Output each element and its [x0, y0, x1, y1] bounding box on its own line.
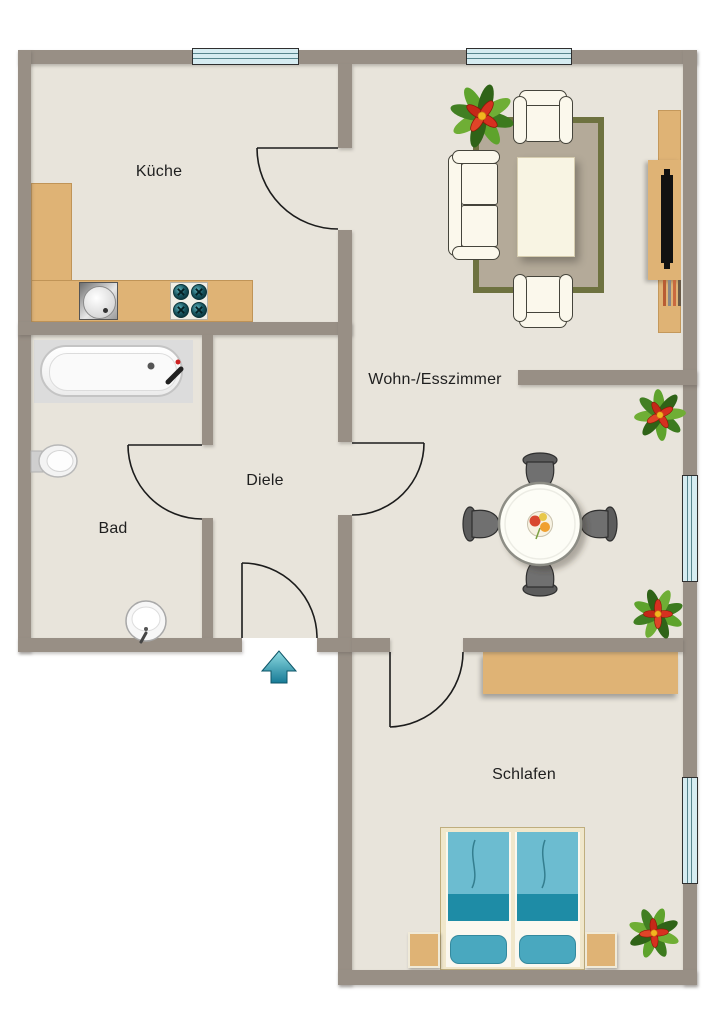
pillow-left	[450, 935, 507, 964]
kitchen-sink-basin	[83, 286, 116, 319]
nightstand-left	[408, 932, 440, 968]
bathtub	[40, 345, 183, 397]
bathtub-inner	[49, 353, 177, 391]
wall-left	[18, 50, 31, 652]
pillow-right	[519, 935, 576, 964]
sofa-backrest	[448, 154, 462, 256]
books	[678, 280, 681, 306]
double-bed	[440, 827, 585, 970]
tv	[664, 169, 670, 269]
room-label-schlafen: Schlafen	[492, 766, 556, 784]
coffee-table	[517, 157, 575, 257]
wall-bedroom-bottom	[338, 970, 697, 985]
window-living-room	[466, 48, 572, 65]
wall-dining-stub	[518, 370, 697, 385]
kitchen-sink-drain	[103, 308, 108, 313]
sofa-armrest	[452, 150, 500, 164]
armchair-armrest	[559, 96, 573, 144]
room-label-kueche: Küche	[136, 163, 182, 181]
wall-bad-diele-upper	[202, 335, 213, 445]
blanket-right	[517, 832, 578, 894]
books	[663, 280, 666, 306]
wall-center-middle	[338, 230, 352, 442]
wall-center-lower	[338, 515, 352, 985]
books	[668, 280, 671, 306]
entrance-arrow-icon	[262, 651, 296, 683]
armchair-bottom	[513, 272, 573, 328]
armchair-top	[513, 90, 573, 146]
nightstand-right	[585, 932, 617, 968]
blanket-left	[448, 832, 509, 894]
armchair-armrest	[513, 96, 527, 144]
sofa-seat-cushion	[461, 163, 498, 205]
window-kitchen	[192, 48, 299, 65]
kitchen-sink	[79, 282, 118, 320]
wall-schlafen-divider-a	[352, 638, 390, 652]
bathtub-surround	[34, 340, 193, 403]
kitchen-counter-horizontal	[31, 280, 253, 322]
armchair-seat	[525, 276, 561, 314]
wall-bad-diele-lower	[202, 518, 213, 638]
wall-center-upper	[338, 64, 352, 148]
room-label-diele: Diele	[246, 472, 283, 490]
floor-plan: Küche Wohn-/Esszimmer Diele Bad Schlafen	[0, 0, 723, 1024]
wardrobe	[483, 652, 678, 694]
books	[673, 280, 676, 306]
stove	[170, 282, 208, 320]
wall-kitchen-bottom	[18, 322, 352, 335]
armchair-armrest	[559, 274, 573, 322]
sofa-armrest	[452, 246, 500, 260]
wall-bottom-left-a	[18, 638, 242, 652]
armchair-armrest	[513, 274, 527, 322]
blanket-band-left	[448, 894, 509, 921]
blanket-band-right	[517, 894, 578, 921]
wall-top	[18, 50, 697, 64]
room-label-wohn-esszimmer: Wohn-/Esszimmer	[368, 371, 501, 389]
wall-schlafen-divider-b	[463, 638, 683, 652]
window-dining	[682, 475, 698, 582]
armchair-seat	[525, 104, 561, 142]
wall-bottom-left-b	[317, 638, 352, 652]
window-bedroom	[682, 777, 698, 884]
sofa	[448, 150, 500, 260]
room-label-bad: Bad	[98, 520, 127, 538]
sofa-seat-cushion	[461, 205, 498, 247]
